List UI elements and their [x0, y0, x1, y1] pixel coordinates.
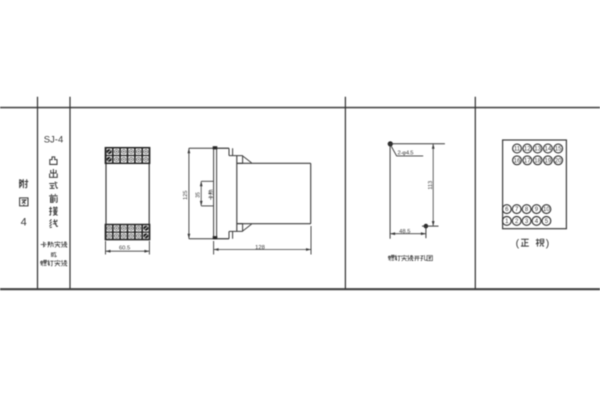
svg-text:14: 14 [545, 146, 552, 153]
svg-text:5: 5 [545, 218, 549, 225]
svg-text:10: 10 [543, 206, 550, 213]
svg-text:(: ( [516, 238, 520, 250]
svg-text:7: 7 [515, 206, 519, 213]
svg-text:20: 20 [555, 157, 562, 164]
svg-text:11: 11 [514, 146, 521, 153]
svg-text:19: 19 [545, 157, 552, 164]
svg-text:18: 18 [534, 157, 541, 164]
svg-text:125: 125 [183, 191, 189, 200]
svg-text:2-φ4.5: 2-φ4.5 [398, 151, 414, 157]
svg-text:2: 2 [515, 218, 519, 225]
svg-text:4: 4 [535, 218, 539, 225]
svg-text:48.5: 48.5 [399, 229, 410, 235]
svg-text:3: 3 [525, 218, 529, 225]
svg-text:): ) [546, 238, 550, 250]
svg-text:9: 9 [535, 206, 539, 213]
svg-text:12: 12 [524, 146, 531, 153]
svg-text:128: 128 [255, 245, 265, 251]
svg-text:13: 13 [534, 146, 541, 153]
svg-text:6: 6 [505, 206, 509, 213]
svg-text:SJ-4: SJ-4 [44, 135, 64, 146]
svg-text:1: 1 [505, 218, 509, 225]
svg-text:8: 8 [525, 206, 529, 213]
svg-text:35: 35 [196, 192, 202, 198]
svg-text:16: 16 [514, 157, 521, 164]
svg-text:60.5: 60.5 [119, 246, 130, 252]
svg-text:15: 15 [555, 146, 562, 153]
svg-text:4: 4 [21, 217, 27, 229]
svg-text:17: 17 [524, 157, 531, 164]
svg-text:113: 113 [428, 181, 434, 190]
